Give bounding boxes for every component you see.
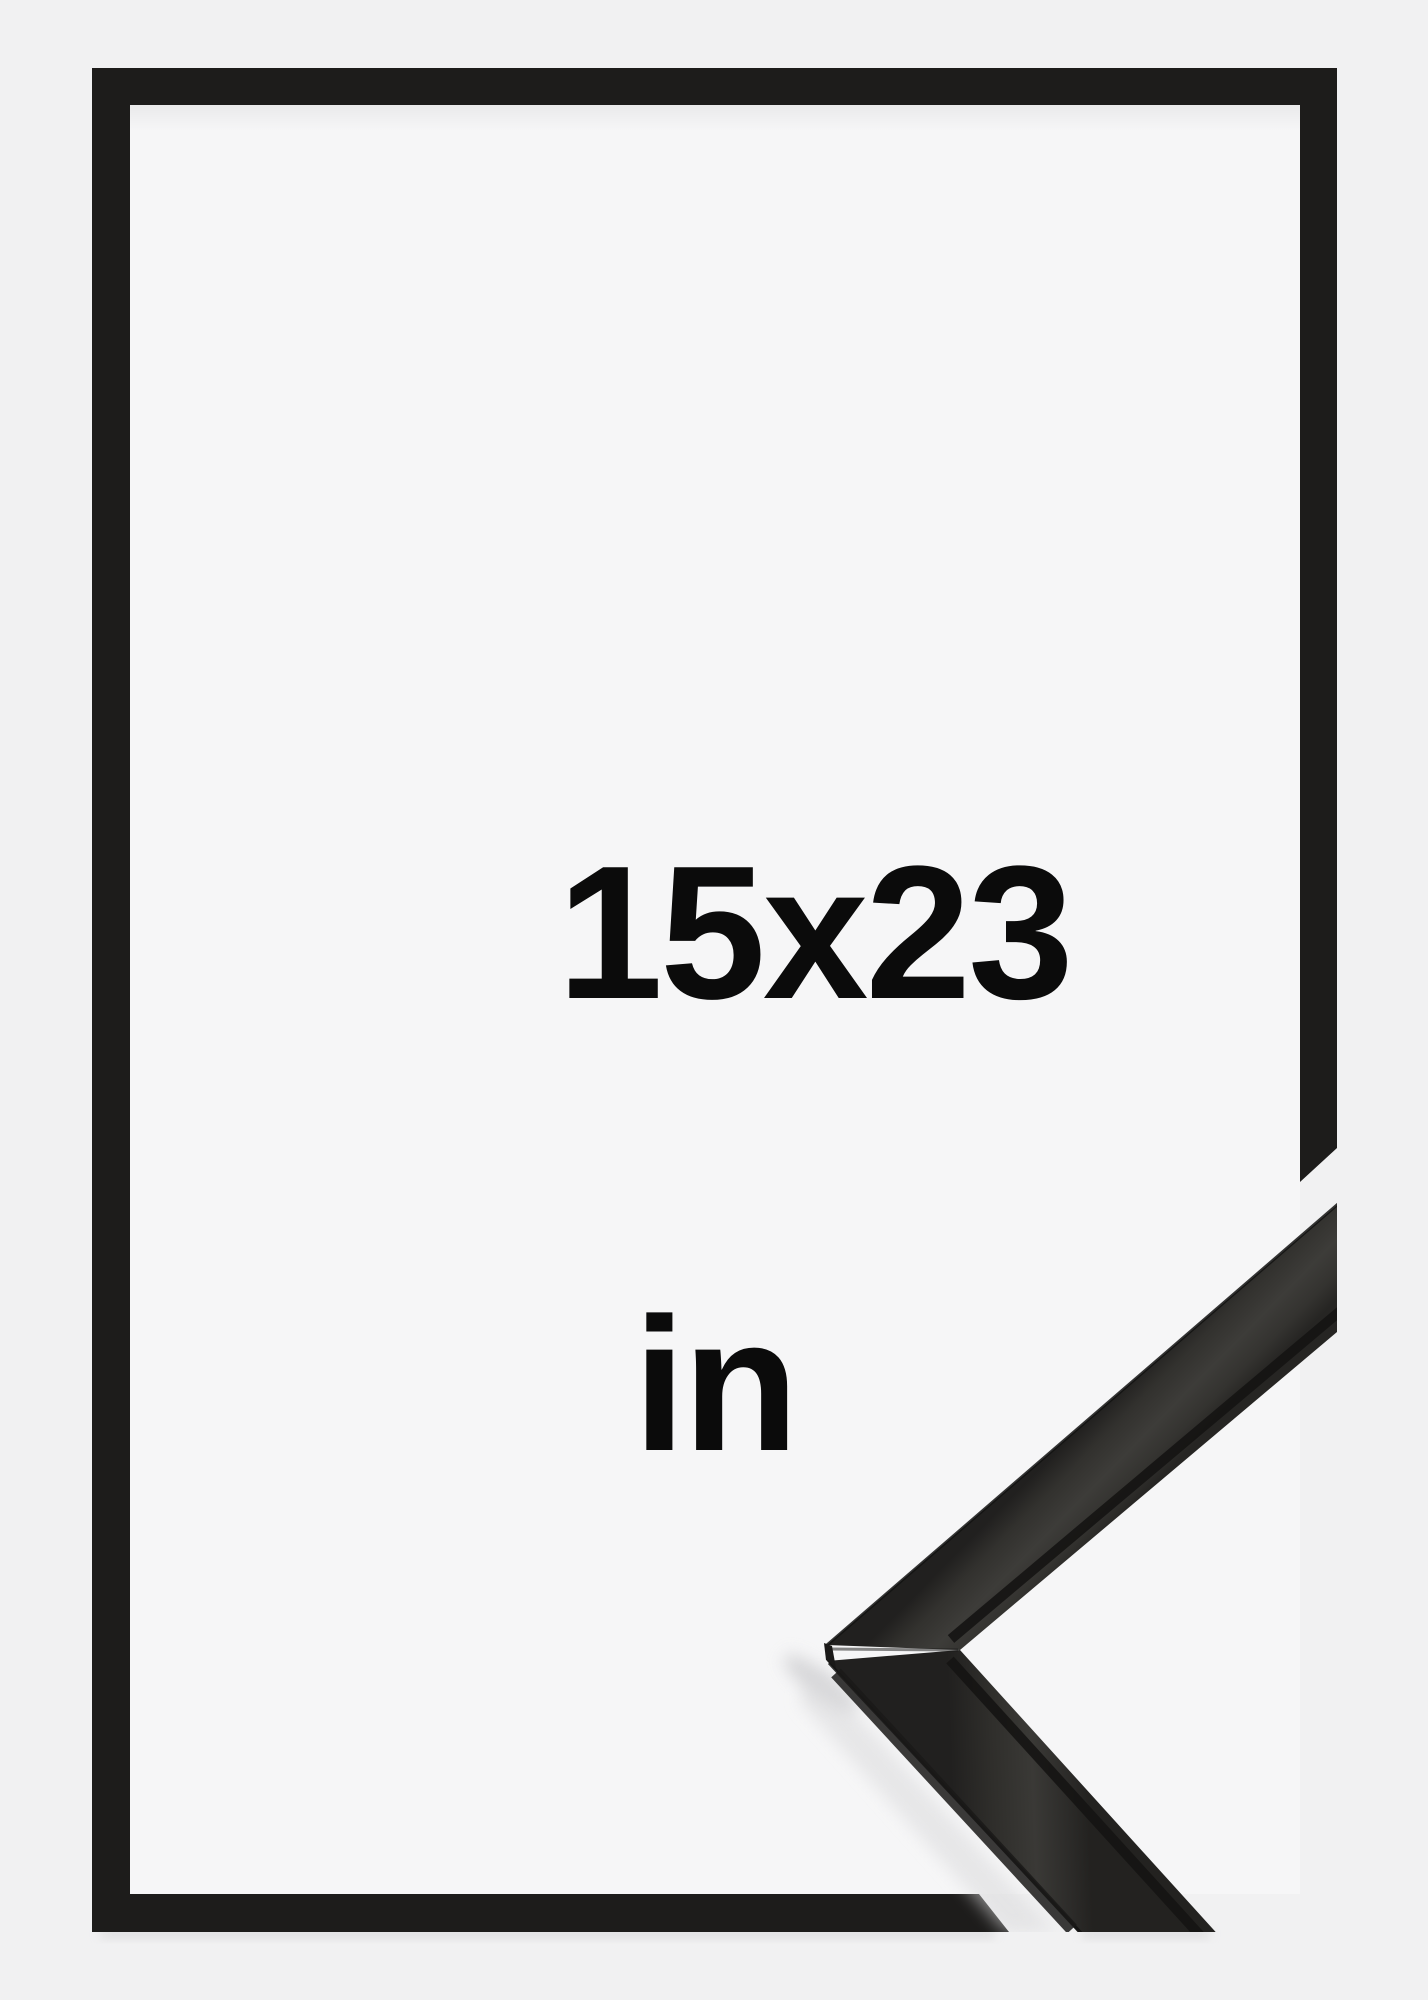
size-caption: 15x23 in	[92, 594, 1337, 1950]
frame-inner-top-shading	[130, 105, 1300, 131]
frame-border-top	[92, 68, 1337, 105]
product-image: 15x23 in	[0, 0, 1428, 2000]
size-label: 15x23	[557, 827, 1070, 1039]
unit-label: in	[92, 1272, 1337, 1498]
